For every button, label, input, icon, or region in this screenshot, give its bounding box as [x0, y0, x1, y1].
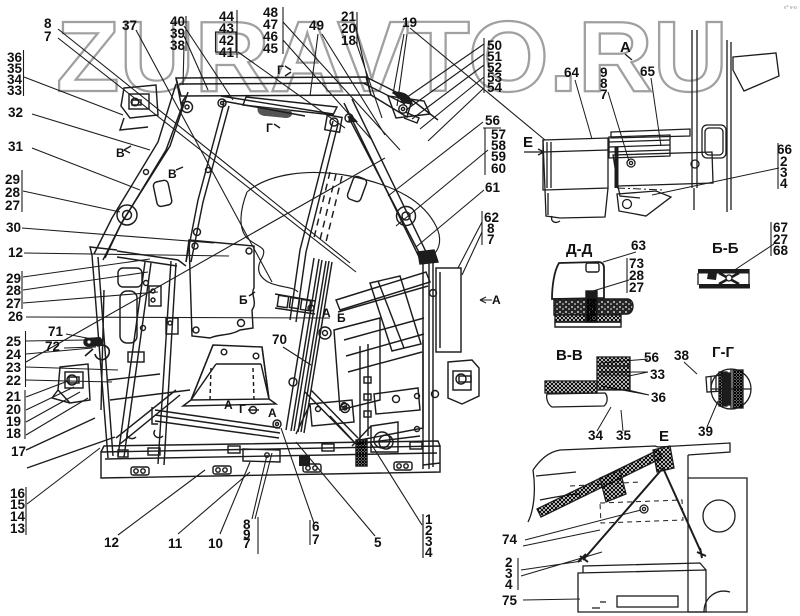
- svg-text:4: 4: [425, 545, 433, 560]
- svg-text:63: 63: [631, 238, 647, 253]
- svg-text:22: 22: [6, 373, 21, 388]
- svg-text:Г: Г: [266, 121, 273, 135]
- svg-text:Е: Е: [523, 134, 533, 151]
- svg-text:38: 38: [170, 38, 186, 53]
- svg-text:12: 12: [8, 245, 23, 260]
- svg-text:Б-Б: Б-Б: [712, 240, 739, 257]
- svg-text:33: 33: [7, 83, 23, 98]
- svg-text:Е: Е: [659, 428, 669, 445]
- svg-text:74: 74: [502, 532, 518, 547]
- svg-text:27: 27: [629, 280, 644, 295]
- svg-text:10: 10: [208, 536, 223, 551]
- svg-text:7: 7: [243, 536, 251, 551]
- svg-text:Г: Г: [239, 402, 246, 416]
- svg-text:32: 32: [8, 105, 23, 120]
- svg-text:А: А: [492, 293, 501, 307]
- svg-text:31: 31: [8, 139, 24, 154]
- svg-text:13: 13: [10, 521, 26, 536]
- svg-text:26: 26: [8, 309, 24, 324]
- svg-text:49: 49: [309, 18, 324, 33]
- svg-text:64: 64: [564, 65, 580, 80]
- svg-text:18: 18: [341, 33, 357, 48]
- svg-text:27: 27: [5, 198, 20, 213]
- svg-text:4: 4: [505, 577, 513, 592]
- svg-text:72: 72: [45, 339, 60, 354]
- svg-text:7: 7: [44, 29, 52, 44]
- svg-text:38: 38: [674, 348, 690, 363]
- svg-text:11: 11: [168, 536, 183, 551]
- svg-text:Б: Б: [239, 293, 248, 307]
- svg-text:12: 12: [104, 535, 119, 550]
- svg-text:7: 7: [600, 87, 608, 102]
- svg-text:17: 17: [11, 444, 26, 459]
- svg-text:Г-Г: Г-Г: [712, 344, 734, 361]
- svg-text:30: 30: [6, 220, 21, 235]
- svg-text:В: В: [168, 167, 177, 181]
- svg-text:56: 56: [485, 113, 501, 128]
- svg-text:54: 54: [487, 80, 503, 95]
- svg-text:56: 56: [644, 350, 660, 365]
- svg-text:5: 5: [374, 535, 382, 550]
- svg-text:45: 45: [263, 41, 279, 56]
- svg-text:39: 39: [698, 424, 713, 439]
- svg-text:v° v-o: v° v-o: [784, 5, 797, 11]
- svg-text:70: 70: [272, 332, 287, 347]
- svg-text:7: 7: [312, 532, 320, 547]
- svg-text:37: 37: [122, 18, 137, 33]
- svg-text:65: 65: [640, 64, 656, 79]
- svg-text:7: 7: [487, 232, 495, 247]
- svg-text:36: 36: [651, 390, 667, 405]
- svg-text:41: 41: [219, 45, 235, 60]
- svg-text:Д-Д: Д-Д: [566, 241, 593, 258]
- svg-text:В: В: [116, 146, 125, 160]
- svg-text:А: А: [620, 39, 631, 56]
- svg-text:Г: Г: [277, 63, 284, 77]
- svg-text:61: 61: [485, 180, 501, 195]
- svg-text:68: 68: [773, 243, 789, 258]
- svg-text:35: 35: [616, 428, 632, 443]
- svg-text:18: 18: [6, 426, 22, 441]
- svg-text:19: 19: [402, 15, 417, 30]
- svg-text:В-В: В-В: [556, 347, 583, 364]
- svg-text:Б: Б: [337, 311, 346, 325]
- svg-text:75: 75: [502, 593, 518, 608]
- svg-text:71: 71: [48, 324, 64, 339]
- svg-text:34: 34: [588, 428, 604, 443]
- svg-text:60: 60: [491, 161, 506, 176]
- svg-text:33: 33: [650, 367, 666, 382]
- svg-text:А: А: [224, 398, 233, 412]
- svg-text:А: А: [268, 406, 277, 420]
- svg-text:4: 4: [780, 176, 788, 191]
